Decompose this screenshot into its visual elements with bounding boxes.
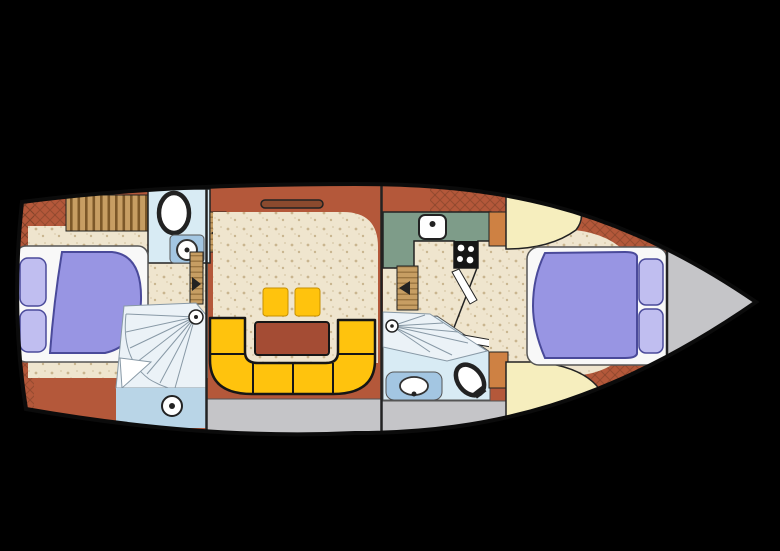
fwd-bed-mattress	[533, 252, 637, 358]
aft-stairs-post-dot	[194, 315, 198, 319]
aft-sink-drain	[185, 248, 190, 253]
salon-table	[255, 322, 329, 355]
fwd-wardrobe-top	[489, 212, 508, 246]
aft-bed-pillow-top	[20, 258, 46, 306]
boat-floor-plan	[0, 0, 780, 551]
fwd-sink-faucet	[412, 392, 417, 397]
aft-porthole-dot	[169, 403, 175, 409]
salon-side-deck	[206, 399, 382, 435]
fwd-bed-pillow-bottom	[639, 309, 663, 353]
salon-roof-hatch	[261, 200, 323, 208]
boat-floor-plan-canvas	[0, 0, 780, 551]
galley-stove-icon	[454, 241, 478, 268]
fwd-wardrobe-bottom	[489, 352, 508, 388]
salon-stool-left	[263, 288, 288, 316]
fwd-stairs-post-dot	[390, 324, 394, 328]
fwd-bed-pillow-top	[639, 259, 663, 305]
aft-slatted-locker	[66, 195, 148, 231]
aft-toilet-icon	[159, 193, 189, 233]
aft-bed-pillow-bottom	[20, 310, 46, 352]
door-post-aft-cabin	[190, 252, 203, 304]
salon-stool-right	[295, 288, 320, 316]
galley-sink-drain	[430, 221, 436, 227]
